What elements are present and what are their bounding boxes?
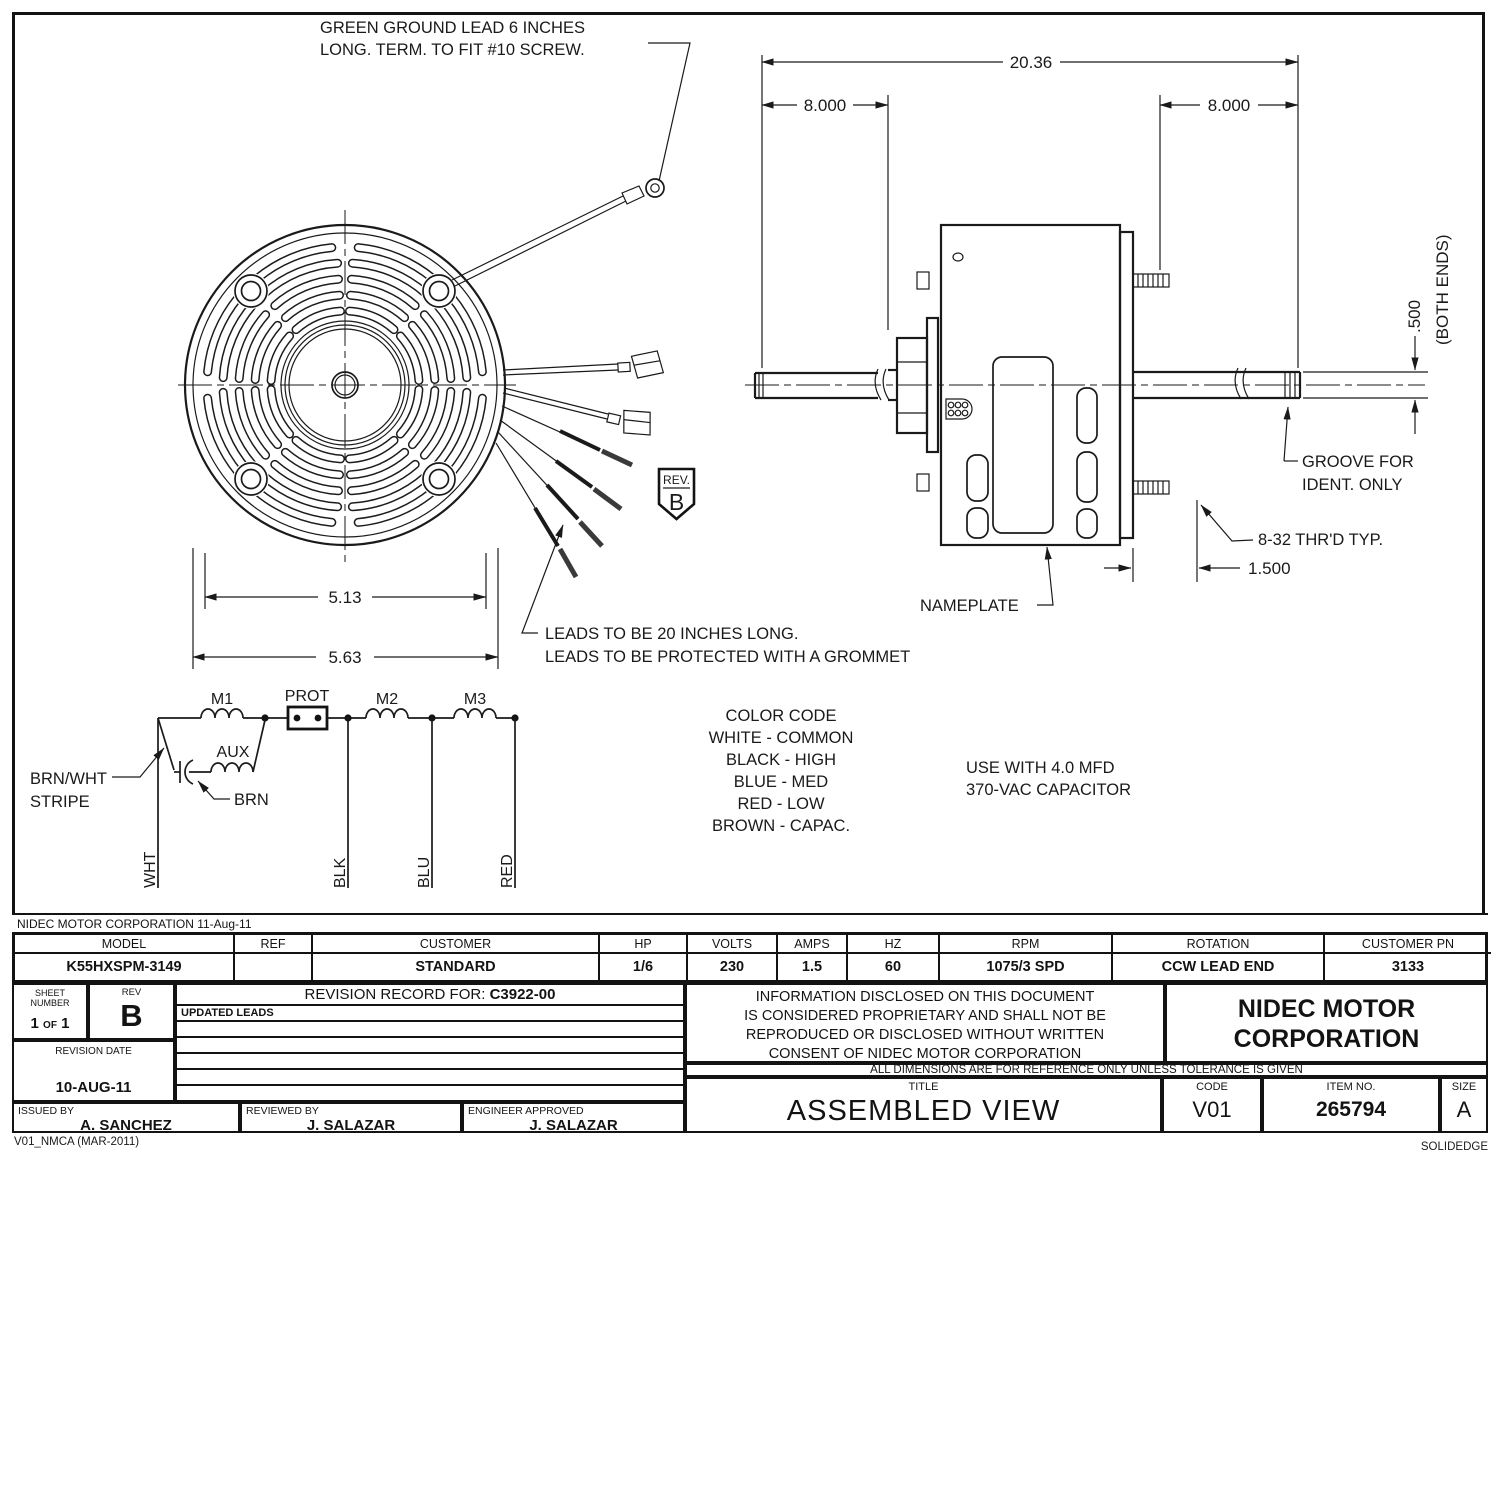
- dim-shaft-dia: .500: [1405, 300, 1424, 333]
- dim-shaft-dia-note: (BOTH ENDS): [1433, 235, 1452, 346]
- dim-shaft-ext-right: 8.000: [1208, 96, 1251, 115]
- revision-record-header: REVISION RECORD FOR: C3922-00: [177, 985, 683, 1006]
- revision-row: [177, 1038, 683, 1054]
- drawing-title: ASSEMBLED VIEW: [687, 1093, 1160, 1129]
- coil-m2: [366, 709, 408, 718]
- label-prot: PROT: [285, 688, 330, 705]
- rev-flag-value: B: [669, 489, 684, 515]
- spec-value-volts: 230: [688, 954, 778, 980]
- label-brnwht-1: BRN/WHT: [30, 770, 107, 788]
- reviewed-by-box: REVIEWED BY J. SALAZAR: [240, 1102, 462, 1133]
- spec-value-amps: 1.5: [778, 954, 848, 980]
- drawing-sheet: 5.13 5.63 GREEN GROUND LEAD 6 INCHES LON…: [0, 0, 1500, 1500]
- dim-bolt-circle: 5.13: [328, 588, 361, 607]
- rev-flag: REV. B: [659, 469, 694, 519]
- issued-by-value: A. SANCHEZ: [14, 1117, 238, 1134]
- code-label: CODE: [1164, 1079, 1260, 1093]
- color-code: COLOR CODE WHITE - COMMON BLACK - HIGH B…: [709, 707, 854, 835]
- color-code-white: WHITE - COMMON: [709, 729, 854, 747]
- sheet-number-box: SHEET NUMBER 1 OF 1: [12, 983, 88, 1040]
- ground-note-line2: LONG. TERM. TO FIT #10 SCREW.: [320, 41, 585, 59]
- spec-header-rpm: RPM: [940, 935, 1113, 954]
- sheet-number-label-1: SHEET: [14, 985, 86, 998]
- side-dimensions: 20.36 8.000 8.000 .500 (BOTH ENDS) GROOV…: [762, 53, 1452, 615]
- spec-value-customer-pn: 3133: [1325, 954, 1491, 980]
- groove-note-line1: GROOVE FOR: [1302, 453, 1414, 471]
- engineer-approved-value: J. SALAZAR: [464, 1117, 683, 1134]
- nameplate: [993, 357, 1053, 533]
- spec-header-ref: REF: [235, 935, 313, 954]
- spade-terminal-2: [605, 403, 655, 438]
- spec-header-customer: CUSTOMER: [313, 935, 600, 954]
- lead-exit-holes: [946, 399, 972, 419]
- reviewed-by-label: REVIEWED BY: [242, 1104, 460, 1117]
- spec-header-rotation: ROTATION: [1113, 935, 1325, 954]
- company-name-line2: CORPORATION: [1167, 1024, 1486, 1054]
- code-value: V01: [1164, 1093, 1260, 1127]
- revision-date-label: REVISION DATE: [14, 1042, 173, 1057]
- spec-header-customer-pn: CUSTOMER PN: [1325, 935, 1491, 954]
- revision-row: [177, 1022, 683, 1038]
- color-code-brown: BROWN - CAPAC.: [712, 817, 850, 835]
- color-code-blue: BLUE - MED: [734, 773, 829, 791]
- size-label: SIZE: [1442, 1079, 1486, 1093]
- proprietary-line: REPRODUCED OR DISCLOSED WITHOUT WRITTEN: [687, 1026, 1163, 1045]
- issued-by-box: ISSUED BY A. SANCHEZ: [12, 1102, 240, 1133]
- reviewed-by-value: J. SALAZAR: [242, 1117, 460, 1134]
- thread-note: 8-32 THR'D TYP.: [1258, 531, 1383, 549]
- brnwht-leader: [112, 748, 164, 777]
- shaft-right: [1133, 368, 1300, 399]
- brn-leader: [198, 781, 230, 799]
- label-m3: M3: [464, 691, 486, 708]
- revision-row: [177, 1086, 683, 1102]
- label-blu: BLU: [416, 857, 433, 888]
- revision-record-box: REVISION RECORD FOR: C3922-00 UPDATED LE…: [175, 983, 685, 1102]
- mounting-stud-bottom: [1133, 481, 1169, 494]
- rev-value: B: [90, 998, 173, 1034]
- item-no-label: ITEM NO.: [1264, 1079, 1438, 1093]
- leads-note-line2: LEADS TO BE PROTECTED WITH A GROMMET: [545, 648, 910, 666]
- spec-header-hz: HZ: [848, 935, 940, 954]
- ring-terminal: [646, 179, 664, 197]
- code-box: CODE V01: [1162, 1077, 1262, 1133]
- body-vent-slots: [967, 388, 1097, 538]
- spec-header-model: MODEL: [15, 935, 235, 954]
- nameplate-label: NAMEPLATE: [920, 597, 1019, 615]
- spec-value-ref: [235, 954, 313, 980]
- capacitor-note-line1: USE WITH 4.0 MFD: [966, 759, 1115, 777]
- leads-note-line1: LEADS TO BE 20 INCHES LONG.: [545, 625, 798, 643]
- engineer-approved-label: ENGINEER APPROVED: [464, 1104, 683, 1117]
- shaft-hub: [897, 272, 941, 491]
- title-block: NIDEC MOTOR CORPORATION 11-Aug-11 MODEL …: [12, 913, 1488, 1133]
- color-code-black: BLACK - HIGH: [726, 751, 836, 769]
- dim-body-dia: 5.63: [328, 648, 361, 667]
- engineer-approved-box: ENGINEER APPROVED J. SALAZAR: [462, 1102, 685, 1133]
- revision-row: UPDATED LEADS: [177, 1006, 683, 1022]
- wiring-schematic: M1 PROT M2 M3 AUX BRN/WHT STRIPE BRN WHT…: [30, 688, 519, 888]
- title-label: TITLE: [687, 1079, 1160, 1093]
- dim-shaft-ext-left: 8.000: [804, 96, 847, 115]
- ground-note-line1: GREEN GROUND LEAD 6 INCHES: [320, 19, 585, 37]
- label-red: RED: [499, 854, 516, 888]
- label-m1: M1: [211, 691, 233, 708]
- front-view: 5.13 5.63: [178, 179, 664, 669]
- color-code-red: RED - LOW: [737, 795, 825, 813]
- proprietary-line: INFORMATION DISCLOSED ON THIS DOCUMENT: [687, 988, 1163, 1007]
- label-brnwht-2: STRIPE: [30, 793, 90, 811]
- form-number: V01_NMCA (MAR-2011): [14, 1136, 139, 1148]
- spec-value-model: K55HXSPM-3149: [15, 954, 235, 980]
- rev-label: REV: [90, 985, 173, 998]
- label-brn: BRN: [234, 791, 269, 809]
- revision-date-value: 10-AUG-11: [14, 1057, 173, 1096]
- corp-date-line: NIDEC MOTOR CORPORATION 11-Aug-11: [12, 913, 1488, 932]
- label-aux: AUX: [217, 744, 250, 761]
- mounting-stud-top: [1133, 274, 1169, 287]
- dim-stud-length: 1.500: [1248, 559, 1291, 578]
- groove-note-line2: IDENT. ONLY: [1302, 476, 1403, 494]
- size-box: SIZE A: [1440, 1077, 1488, 1133]
- dim-overall-length: 20.36: [1010, 53, 1053, 72]
- item-no-value: 265794: [1264, 1093, 1438, 1127]
- proprietary-box: INFORMATION DISCLOSED ON THIS DOCUMENT I…: [685, 983, 1165, 1063]
- stripped-lead-6: [496, 443, 576, 577]
- item-no-box: ITEM NO. 265794: [1262, 1077, 1440, 1133]
- company-box: NIDEC MOTOR CORPORATION: [1165, 983, 1488, 1063]
- revision-date-box: REVISION DATE 10-AUG-11: [12, 1040, 175, 1102]
- cad-system-label: SOLIDEDGE: [1421, 1141, 1488, 1153]
- spec-value-rpm: 1075/3 SPD: [940, 954, 1113, 980]
- ground-note-leader: [648, 43, 690, 181]
- color-code-title: COLOR CODE: [726, 707, 837, 725]
- spade-terminal-1: [617, 351, 663, 379]
- revision-row: [177, 1070, 683, 1086]
- spec-value-customer: STANDARD: [313, 954, 600, 980]
- sheet-number-label-2: NUMBER: [14, 998, 86, 1008]
- disclaimer-strip: ALL DIMENSIONS ARE FOR REFERENCE ONLY UN…: [685, 1063, 1488, 1077]
- label-wht: WHT: [142, 851, 159, 888]
- drawing-canvas: 5.13 5.63 GREEN GROUND LEAD 6 INCHES LON…: [0, 0, 1500, 913]
- spec-value-hz: 60: [848, 954, 940, 980]
- spec-header-amps: AMPS: [778, 935, 848, 954]
- side-view: 20.36 8.000 8.000 .500 (BOTH ENDS) GROOV…: [745, 53, 1452, 615]
- proprietary-line: CONSENT OF NIDEC MOTOR CORPORATION: [687, 1045, 1163, 1064]
- stripped-lead-5: [498, 432, 602, 546]
- label-m2: M2: [376, 691, 398, 708]
- coil-m3: [454, 709, 496, 718]
- spec-header-hp: HP: [600, 935, 688, 954]
- issued-by-label: ISSUED BY: [14, 1104, 238, 1117]
- coil-aux: [211, 763, 253, 772]
- sheet-number-value: 1 OF 1: [14, 1008, 86, 1032]
- label-blk: BLK: [332, 857, 349, 888]
- spec-value-hp: 1/6: [600, 954, 688, 980]
- spec-header-volts: VOLTS: [688, 935, 778, 954]
- coil-m1: [201, 709, 243, 718]
- size-value: A: [1442, 1093, 1486, 1127]
- title-box: TITLE ASSEMBLED VIEW: [685, 1077, 1162, 1133]
- rev-flag-label: REV.: [663, 473, 690, 487]
- spec-value-rotation: CCW LEAD END: [1113, 954, 1325, 980]
- revision-row: [177, 1054, 683, 1070]
- front-dimensions: 5.13 5.63: [193, 548, 498, 669]
- rev-box: REV B: [88, 983, 175, 1040]
- ground-lead-wire: [452, 179, 664, 286]
- body-hole: [953, 253, 963, 261]
- capacitor-note-line2: 370-VAC CAPACITOR: [966, 781, 1131, 799]
- company-name-line1: NIDEC MOTOR: [1167, 994, 1486, 1024]
- leads-note-leader: [522, 525, 563, 633]
- spec-table: MODEL REF CUSTOMER HP VOLTS AMPS HZ RPM …: [12, 932, 1488, 983]
- proprietary-line: IS CONSIDERED PROPRIETARY AND SHALL NOT …: [687, 1007, 1163, 1026]
- lead-wires: [496, 351, 664, 577]
